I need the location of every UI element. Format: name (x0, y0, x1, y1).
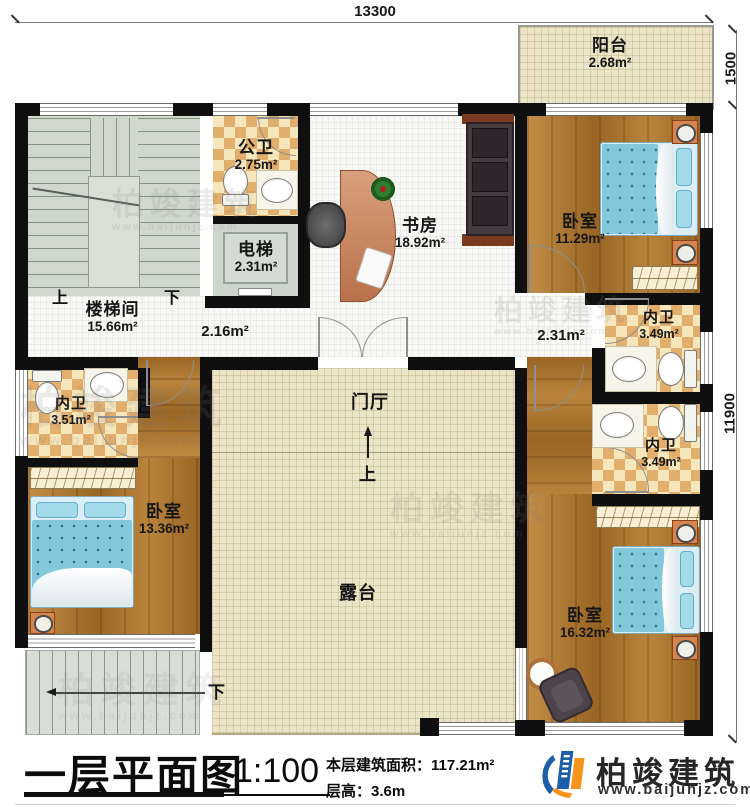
pillow (36, 502, 78, 518)
room-label-ensuite-w: 内卫 3.51m² (38, 396, 104, 427)
window (15, 368, 28, 456)
room-label-foyer: 门厅 (338, 392, 402, 412)
exterior-stair-arrow-line (55, 692, 205, 694)
brand-logo-icon (540, 746, 590, 800)
sink (261, 178, 293, 203)
wall (592, 296, 605, 300)
stair-treads (90, 118, 138, 176)
entry-up-marker: 上 (359, 460, 376, 485)
wall (15, 103, 28, 368)
wall (684, 720, 713, 736)
floor-height-text: 层高：3.6m (326, 780, 405, 801)
title-underline (24, 792, 224, 797)
window (700, 412, 713, 470)
nightstand (672, 636, 698, 660)
footer-separator (15, 804, 735, 805)
wall (592, 392, 713, 404)
hall-east-area-label: 2.31m² (527, 328, 595, 345)
dimension-tick (728, 24, 737, 33)
brand-website: www.baijunjz.com (598, 782, 750, 798)
building-logo-icon (540, 746, 590, 800)
window (28, 634, 195, 648)
stair-treads (138, 118, 200, 294)
exterior-down-marker: 下 (208, 678, 225, 703)
wardrobe (30, 467, 136, 489)
bed-sheet (656, 144, 674, 234)
office-chair (306, 202, 346, 248)
pillow (676, 148, 692, 186)
wall (28, 458, 138, 467)
wall (213, 216, 298, 224)
wall (515, 103, 527, 293)
sink (612, 356, 646, 382)
floor-area-text: 本层建筑面积：117.21m² (326, 754, 494, 775)
window (700, 133, 713, 228)
door-leaf (605, 491, 649, 493)
window (700, 332, 713, 384)
room-label-bedroom-w: 卧室 13.36m² (122, 502, 206, 536)
toilet (658, 352, 684, 386)
pillow (676, 190, 692, 228)
dimension-right-value: 11900 (722, 379, 739, 449)
stair-landing (88, 176, 140, 288)
door-leaf (406, 317, 408, 357)
room-label-bedroom-se: 卧室 16.32m² (540, 606, 630, 640)
terrace-railing (439, 722, 515, 735)
room-label-terrace: 露台 (320, 583, 396, 603)
title-underline-thin (224, 794, 330, 796)
wall (515, 720, 545, 736)
sink (600, 412, 634, 438)
terrace-step-line (212, 452, 515, 453)
room-label-stairwell: 楼梯间 15.66m² (70, 300, 155, 334)
dimension-line-top (15, 22, 712, 23)
nightstand (672, 120, 698, 144)
wall (298, 116, 310, 296)
toilet (658, 406, 684, 440)
sink (90, 372, 124, 398)
room-foyer-terrace (212, 368, 515, 735)
entry-arrow-line (367, 434, 369, 458)
plant (370, 176, 396, 202)
floor-plan-canvas: 13300 1500 11900 阳台 2.68m² (0, 0, 750, 811)
toilet-tank (684, 404, 697, 442)
nightstand (30, 612, 55, 634)
room-label-ensuite-e1: 内卫 3.49m² (626, 310, 692, 341)
wall (515, 510, 527, 648)
sofa-cushion (472, 196, 508, 226)
pillow (680, 593, 694, 629)
nightstand (672, 520, 698, 544)
toilet-tank (222, 194, 249, 206)
room-label-study: 书房 18.92m² (375, 216, 465, 250)
wall (205, 296, 310, 308)
wall (173, 103, 213, 116)
window (213, 103, 267, 116)
room-label-elevator: 电梯 2.31m² (220, 240, 292, 274)
dimension-top-value: 13300 (320, 3, 430, 20)
terrace-post (420, 718, 439, 736)
bed-sheet (662, 548, 678, 632)
toilet-tank (684, 350, 697, 388)
room-label-ensuite-e2: 内卫 3.49m² (628, 438, 694, 469)
wall (15, 456, 28, 648)
pillow (84, 502, 126, 518)
window (545, 722, 684, 735)
window (310, 103, 458, 116)
nightstand (672, 240, 698, 265)
stair-treads (28, 118, 90, 294)
wall (592, 494, 713, 506)
window (700, 520, 713, 632)
exterior-stair-arrow-head (46, 688, 56, 696)
bed-sheet (32, 568, 132, 606)
wardrobe (632, 266, 698, 290)
hall-area-label: 2.16m² (190, 324, 260, 341)
entry-arrow-head (364, 426, 372, 436)
pillow (680, 551, 694, 587)
wall (267, 103, 310, 116)
room-label-bedroom-ne: 卧室 11.29m² (535, 212, 625, 246)
plan-scale: 1:100 (234, 752, 319, 791)
window (40, 103, 173, 116)
balcony-sliding-door (546, 103, 686, 116)
sofa-cushion (472, 128, 508, 158)
wall (408, 357, 515, 370)
wall (200, 357, 318, 370)
toilet-tank (32, 370, 62, 382)
sofa-cushion (472, 162, 508, 192)
dimension-right-top-value: 1500 (723, 39, 740, 99)
room-label-public-bath: 公卫 2.75m² (220, 138, 292, 172)
room-label-balcony: 阳台 2.68m² (555, 36, 665, 70)
wall (515, 368, 527, 510)
stair-down-marker: 下 (164, 284, 180, 308)
window (515, 648, 527, 722)
stair-up-marker: 上 (52, 284, 68, 308)
elevator-door (238, 288, 272, 296)
